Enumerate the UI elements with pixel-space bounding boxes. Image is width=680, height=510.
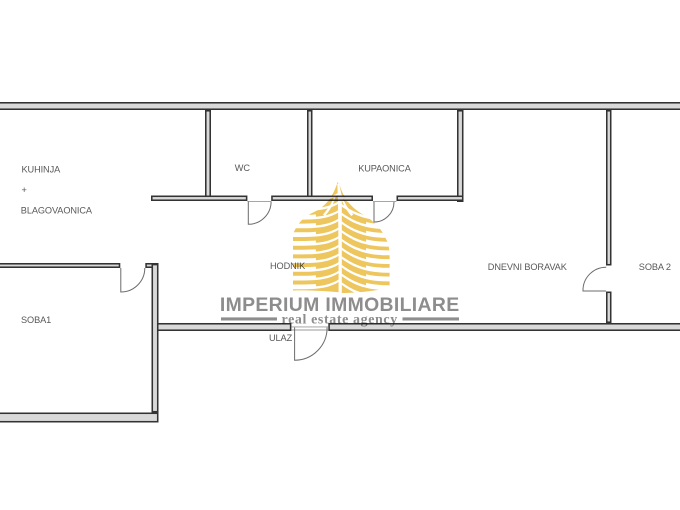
svg-text:+: + [22,185,27,195]
svg-text:SOBA1: SOBA1 [21,315,51,325]
svg-text:SOBA 2: SOBA 2 [639,262,671,272]
svg-text:WC: WC [235,163,251,173]
svg-text:DNEVNI BORAVAK: DNEVNI BORAVAK [488,262,568,272]
svg-text:KUHINJA: KUHINJA [22,164,62,174]
svg-text:BLAGOVAONICA: BLAGOVAONICA [21,206,93,216]
svg-text:KUPAONICA: KUPAONICA [358,164,412,174]
svg-text:real estate agency: real estate agency [282,313,398,328]
svg-text:ULAZ: ULAZ [269,333,293,343]
